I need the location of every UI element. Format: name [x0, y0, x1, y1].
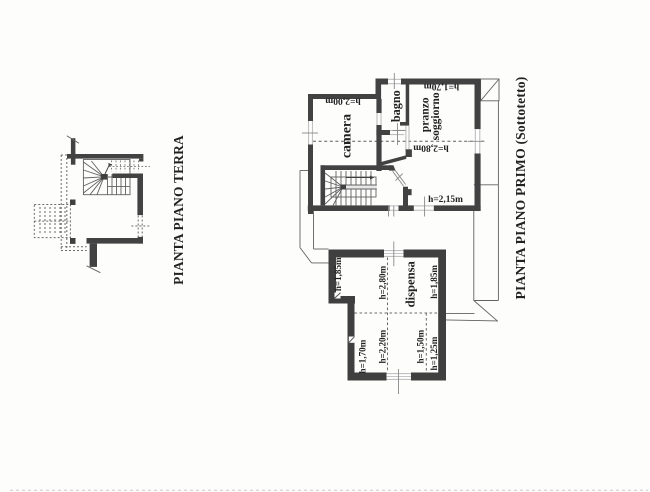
svg-text:camera: camera [339, 114, 354, 158]
svg-text:h=1,25m: h=1,25m [429, 336, 439, 370]
svg-text:h=1,50m: h=1,50m [416, 329, 426, 363]
svg-text:soggiorno: soggiorno [430, 92, 442, 140]
svg-text:h=2,20m: h=2,20m [377, 329, 387, 363]
svg-text:bagno: bagno [389, 90, 403, 122]
svg-text:PIANTA PIANO TERRA: PIANTA PIANO TERRA [171, 135, 186, 285]
svg-text:h=1,85m: h=1,85m [429, 265, 439, 299]
svg-text:h=1,70m: h=1,70m [424, 81, 460, 92]
svg-text:h=2,00m: h=2,00m [325, 95, 361, 106]
svg-text:h=2,80m: h=2,80m [377, 265, 387, 299]
svg-text:dispensa: dispensa [403, 260, 417, 307]
svg-text:h=1,70m: h=1,70m [358, 339, 368, 373]
svg-text:PIANTA PIANO PRIMO (Sottotetto: PIANTA PIANO PRIMO (Sottotetto) [513, 76, 529, 299]
svg-text:h=1,85m: h=1,85m [333, 257, 343, 291]
svg-text:h=2,80m: h=2,80m [413, 143, 449, 154]
svg-text:h=2,15m: h=2,15m [428, 195, 463, 205]
